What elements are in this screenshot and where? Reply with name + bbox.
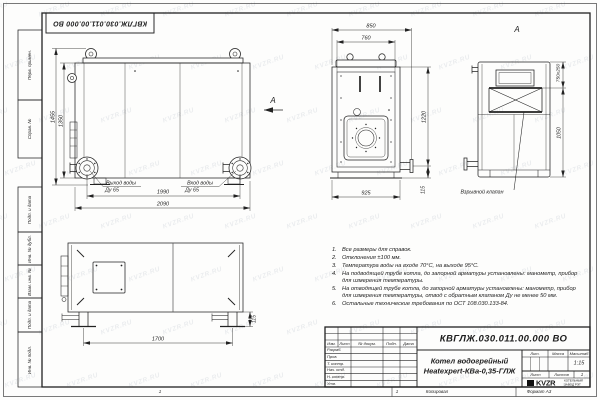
margin-label-inv-dubl: Инв. № дубл. xyxy=(28,235,33,263)
dim-1050: 1050 xyxy=(557,127,562,139)
note-item: На отводящей трубе котла, до запорной ар… xyxy=(331,286,585,300)
watermark-text: KVZR.RU xyxy=(314,160,347,178)
watermark-text: KVZR.RU xyxy=(224,107,257,125)
watermark-text: KVZR.RU xyxy=(100,213,133,231)
note-item: Все размеры для справок. xyxy=(331,247,585,254)
margin-label-inv-podl: Инв. № подл. xyxy=(28,346,33,374)
watermark-text: KVZR.RU xyxy=(0,213,9,231)
rev-col-data: Дата xyxy=(403,342,414,346)
sign-row-prov: Пров. xyxy=(327,355,338,359)
watermark-text: KVZR.RU xyxy=(314,54,347,72)
watermark-text: KVZR.RU xyxy=(376,372,409,390)
dim-115-foot: 115 xyxy=(252,315,257,323)
watermark-text: KVZR.RU xyxy=(252,160,285,178)
watermark-text: KVZR.RU xyxy=(348,319,381,337)
note-item: Температура воды на входе 70°С, на выход… xyxy=(331,263,585,270)
watermark-text: KVZR.RU xyxy=(66,372,99,390)
watermark-text: KVZR.RU xyxy=(252,372,285,390)
watermark-text: KVZR.RU xyxy=(410,213,443,231)
scale-value: 1:15 xyxy=(574,361,585,367)
watermark-text: KVZR.RU xyxy=(562,160,595,178)
watermark-text: KVZR.RU xyxy=(38,1,71,19)
sheets-value: 1 xyxy=(581,372,584,377)
watermark-text: KVZR.RU xyxy=(190,160,223,178)
sign-row-nkontr: Н. контр. xyxy=(327,375,345,379)
product-name-line1: Котел водогрейный xyxy=(431,357,508,365)
margin-label-podp-data-1: Подп. и дата xyxy=(28,195,33,223)
watermark-text: KVZR.RU xyxy=(0,107,9,125)
sheet-label: Лист xyxy=(530,373,540,377)
company-logo-icon xyxy=(527,380,534,387)
watermark-text: KVZR.RU xyxy=(38,319,71,337)
sign-row-razrab: Разраб. xyxy=(327,348,341,352)
watermark-text: KVZR.RU xyxy=(286,319,319,337)
dim-115-stub: 115 xyxy=(422,186,427,194)
watermark-text: KVZR.RU xyxy=(0,319,9,337)
watermark-text: KVZR.RU xyxy=(190,54,223,72)
dim-1350: 1350 xyxy=(59,115,65,127)
watermark-text: KVZR.RU xyxy=(4,266,37,284)
watermark-text: KVZR.RU xyxy=(100,1,133,19)
watermark-text: KVZR.RU xyxy=(348,107,381,125)
watermark-text: KVZR.RU xyxy=(500,54,533,72)
lit-label: Лит. xyxy=(530,352,539,356)
format-label: Формат А3 xyxy=(527,389,552,394)
watermark-text: KVZR.RU xyxy=(128,266,161,284)
inlet-dn-label: Ду 65 xyxy=(185,188,199,193)
watermark-text: KVZR.RU xyxy=(534,1,567,19)
margin-label-perv-primen: Перв. примен. xyxy=(28,50,33,80)
dim-925: 925 xyxy=(361,191,370,197)
product-name-line2: Heatexpert-КВа-0,35-ГЛЖ xyxy=(424,367,516,375)
technical-notes: Все размеры для справок. Отклонения ±100… xyxy=(331,247,585,309)
sheets-label: Листов xyxy=(554,373,569,377)
watermark-text: KVZR.RU xyxy=(438,160,471,178)
section-arrow-letter: А xyxy=(270,97,275,105)
header-stamp-doc-number: КВГЛЖ.030.011.00.000 ВО xyxy=(53,20,147,27)
watermark-text: KVZR.RU xyxy=(224,1,257,19)
watermark-text: KVZR.RU xyxy=(162,213,195,231)
margin-label-podp-data-2: Подп. и дата xyxy=(28,301,33,329)
watermark-text: KVZR.RU xyxy=(286,213,319,231)
title-block-doc-number: КВГЛЖ.030.011.00.000 ВО xyxy=(440,334,568,344)
watermark-text: KVZR.RU xyxy=(252,54,285,72)
watermark-text: KVZR.RU xyxy=(410,1,443,19)
watermark-text: KVZR.RU xyxy=(66,266,99,284)
watermark-text: KVZR.RU xyxy=(4,160,37,178)
watermark-text: KVZR.RU xyxy=(534,213,567,231)
scale-label: Масштаб xyxy=(570,352,589,356)
watermark-text: KVZR.RU xyxy=(162,319,195,337)
sign-row-tkontr: Т. контр. xyxy=(327,362,344,366)
watermark-text: KVZR.RU xyxy=(286,107,319,125)
watermark-text: KVZR.RU xyxy=(0,1,9,19)
watermark-text: KVZR.RU xyxy=(472,107,505,125)
dim-1990: 1990 xyxy=(157,190,169,196)
outlet-dn-label: Ду 65 xyxy=(105,188,119,193)
note-item: Остальные технические требования по ОСТ … xyxy=(331,301,585,308)
watermark-text: KVZR.RU xyxy=(224,213,257,231)
outlet-label: Выход воды xyxy=(106,181,136,186)
dim-760: 760 xyxy=(361,36,370,42)
watermark-text: KVZR.RU xyxy=(562,54,595,72)
drawing-sheet: KVZR.RUKVZR.RUKVZR.RUKVZR.RUKVZR.RUKVZR.… xyxy=(0,0,600,400)
watermark-text: KVZR.RU xyxy=(348,213,381,231)
watermark-text: KVZR.RU xyxy=(472,1,505,19)
view-a-letter: А xyxy=(514,26,519,34)
watermark-text: KVZR.RU xyxy=(4,54,37,72)
dim-850: 850 xyxy=(366,24,375,30)
inlet-label: Вход воды xyxy=(187,181,213,186)
company-name-line2: ЗАВОД РЭТ xyxy=(564,383,581,386)
watermark-text: KVZR.RU xyxy=(438,54,471,72)
watermark-text: KVZR.RU xyxy=(472,213,505,231)
sign-row-utv: Утв. xyxy=(327,382,336,386)
margin-label-sprav-no: Справ. № xyxy=(28,119,33,139)
dim-1455: 1455 xyxy=(51,111,57,123)
dim-1220: 1220 xyxy=(422,111,428,123)
watermark-text: KVZR.RU xyxy=(500,160,533,178)
explosion-valve-label: Взрывной клапан xyxy=(460,190,503,195)
watermark-text: KVZR.RU xyxy=(162,107,195,125)
margin-label-vzam-inv: Взам. инв. № xyxy=(28,268,33,296)
note-item: На подводящей трубе котла, до запорной а… xyxy=(331,271,585,285)
bottom-zone-number: 1 xyxy=(159,389,162,394)
dim-2090: 2090 xyxy=(157,202,169,208)
note-item: Отклонения ±100 мм. xyxy=(331,255,585,262)
rev-col-podp: Подп. xyxy=(386,342,397,346)
copied-label: Копировал xyxy=(426,389,448,394)
watermark-text: KVZR.RU xyxy=(128,372,161,390)
watermark-text: KVZR.RU xyxy=(66,54,99,72)
watermark-text: KVZR.RU xyxy=(100,107,133,125)
company-logo-text: KVZR xyxy=(536,379,555,387)
rev-col-ndokum: № докум. xyxy=(358,342,376,346)
watermark-text: KVZR.RU xyxy=(162,1,195,19)
sign-row-nachotd: Нач. отд. xyxy=(327,368,345,372)
watermark-text: KVZR.RU xyxy=(190,266,223,284)
watermark-text: KVZR.RU xyxy=(534,107,567,125)
watermark-text: KVZR.RU xyxy=(128,54,161,72)
watermark-text: KVZR.RU xyxy=(4,372,37,390)
watermark-text: KVZR.RU xyxy=(100,319,133,337)
watermark-text: KVZR.RU xyxy=(66,160,99,178)
watermark-text: KVZR.RU xyxy=(286,1,319,19)
bottom-zone-number-2: 1 xyxy=(396,389,399,394)
watermark-text: KVZR.RU xyxy=(252,266,285,284)
dim-750x250: 750x250 xyxy=(558,64,563,82)
watermark-text: KVZR.RU xyxy=(376,160,409,178)
rev-col-izm: Изм. xyxy=(327,342,336,346)
watermark-text: KVZR.RU xyxy=(38,213,71,231)
watermark-text: KVZR.RU xyxy=(410,319,443,337)
mass-label: Масса xyxy=(552,352,564,356)
watermark-text: KVZR.RU xyxy=(348,1,381,19)
watermark-text: KVZR.RU xyxy=(128,160,161,178)
watermark-text: KVZR.RU xyxy=(190,372,223,390)
rev-col-list: Лист xyxy=(339,342,349,346)
dim-1700: 1700 xyxy=(152,337,164,343)
watermark-text: KVZR.RU xyxy=(376,54,409,72)
